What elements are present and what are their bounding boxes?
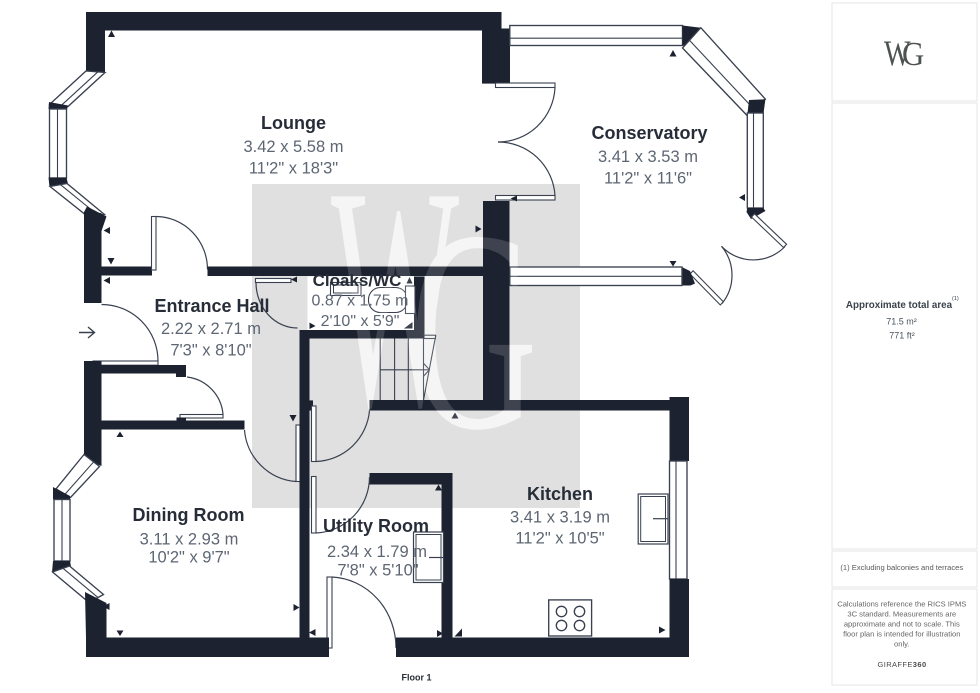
svg-text:Approximate total area: Approximate total area [846,300,953,311]
svg-text:3.41 x 3.53 m: 3.41 x 3.53 m [598,148,698,166]
svg-text:Kitchen: Kitchen [527,484,593,504]
svg-text:11'2" x 11'6": 11'2" x 11'6" [604,170,692,188]
svg-text:(1): (1) [952,296,959,302]
svg-text:(1) Excluding balconies and te: (1) Excluding balconies and terraces [840,563,963,572]
svg-text:3.41 x 3.19 m: 3.41 x 3.19 m [510,509,610,527]
svg-text:771 ft²: 771 ft² [889,331,915,341]
svg-text:Floor 1: Floor 1 [401,673,431,683]
svg-text:3.42 x 5.58 m: 3.42 x 5.58 m [244,138,344,156]
svg-text:3C standard. Measurements are: 3C standard. Measurements are [847,610,956,619]
svg-text:11'2" x 10'5": 11'2" x 10'5" [515,530,604,548]
svg-text:2.22 x 2.71 m: 2.22 x 2.71 m [161,320,261,338]
svg-text:Dining Room: Dining Room [133,505,245,525]
svg-text:11'2" x 18'3": 11'2" x 18'3" [249,160,338,178]
svg-text:2.34 x 1.79 m: 2.34 x 1.79 m [327,543,427,561]
svg-text:0.87 x 1.75 m: 0.87 x 1.75 m [312,293,409,310]
svg-text:Lounge: Lounge [261,113,326,133]
svg-text:7'3" x 8'10": 7'3" x 8'10" [170,342,251,360]
svg-text:10'2" x 9'7": 10'2" x 9'7" [148,549,229,567]
svg-text:floor plan is intended for ill: floor plan is intended for illustration [843,630,960,639]
svg-text:approximate and not to scale.: approximate and not to scale. This [844,620,960,629]
svg-text:G: G [410,172,538,490]
svg-text:2'10" x 5'9": 2'10" x 5'9" [321,313,400,330]
svg-text:only.: only. [894,640,909,649]
svg-text:Cloaks/WC: Cloaks/WC [313,271,402,290]
svg-text:Utility Room: Utility Room [323,516,429,536]
svg-text:Conservatory: Conservatory [591,123,707,143]
svg-text:Calculations reference the RIC: Calculations reference the RICS IPMS [837,600,966,609]
svg-text:Entrance Hall: Entrance Hall [154,296,269,316]
svg-text:3.11 x 2.93 m: 3.11 x 2.93 m [140,531,239,549]
svg-text:GIRAFFE360: GIRAFFE360 [877,660,926,669]
svg-text:G: G [902,35,924,73]
svg-text:71.5 m²: 71.5 m² [886,317,917,327]
svg-text:7'8" x 5'10": 7'8" x 5'10" [337,562,418,580]
